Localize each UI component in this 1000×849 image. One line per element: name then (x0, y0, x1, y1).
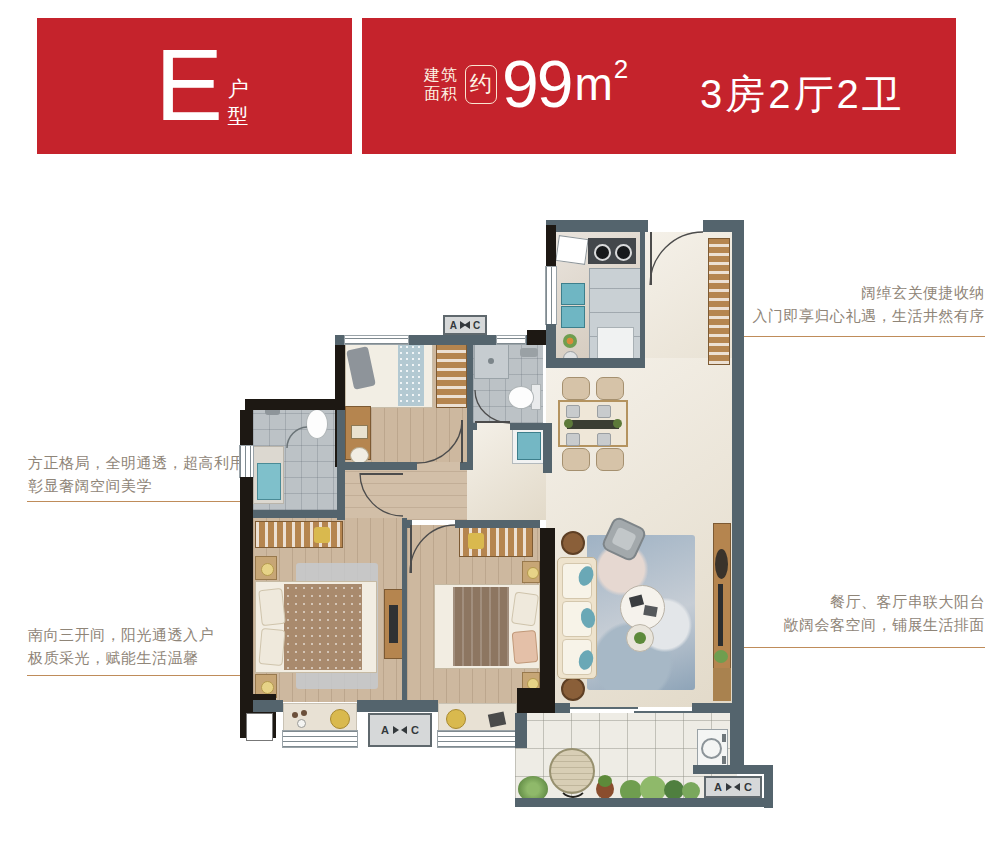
wall-segment (515, 713, 527, 748)
stove (588, 238, 636, 264)
dining-table (558, 400, 628, 447)
balcony-plant (664, 780, 684, 800)
bay-window-glass (438, 731, 517, 747)
dining-chair (596, 448, 624, 471)
kitchen-window (546, 267, 556, 324)
plant-top (598, 775, 612, 787)
master-door-arc (360, 473, 404, 517)
wall-segment (546, 225, 556, 267)
area-prefix-line1: 建筑 (424, 65, 458, 84)
console-shelf (713, 668, 731, 701)
bedroom3-door-arc (417, 420, 463, 464)
annotation-line: 极质采光，赋能生活温馨 (28, 646, 214, 669)
kitchen-basin (561, 306, 585, 328)
ac-platform-south: AC (368, 713, 432, 747)
master-wardrobe (255, 521, 343, 548)
burner-icon (594, 244, 611, 261)
annotation-line: 阔绰玄关便捷收纳 (753, 281, 986, 304)
unit-letter: E (155, 34, 223, 136)
dining-chair (562, 377, 590, 400)
lamp-icon (527, 567, 539, 579)
pillow (258, 588, 286, 626)
ac-label-a: A (450, 320, 457, 331)
wall-segment (730, 713, 744, 765)
annotation-layout: 方正格局，全明通透，超高利用率 彰显奢阔空间美学 (28, 451, 261, 497)
tea-set-icon (297, 719, 306, 728)
wall-segment (245, 399, 337, 410)
ac-label-a: A (714, 781, 722, 793)
console-plant (714, 650, 728, 663)
wall-segment (543, 423, 552, 473)
kitchen-basin (561, 283, 585, 305)
toilet-bowl (508, 386, 534, 409)
annotation-line: 方正格局，全明通透，超高利用率 (28, 451, 261, 474)
wall-segment (555, 703, 570, 713)
annotation-line: 敞阔会客空间，铺展生活排面 (784, 613, 986, 636)
bed2 (434, 584, 540, 669)
wall-segment (540, 528, 555, 690)
lamp-icon (261, 563, 274, 576)
annotation-south: 南向三开间，阳光通透入户 极质采光，赋能生活温馨 (28, 623, 214, 669)
leader-line-layout (27, 501, 247, 502)
shower-partition (287, 427, 308, 449)
table-plant (613, 419, 622, 428)
shoe-cabinet (708, 238, 730, 365)
nightstand (522, 561, 540, 583)
leader-line-living (737, 647, 985, 648)
sofa (557, 557, 597, 679)
dresser-tv (389, 605, 398, 643)
pillow (258, 628, 285, 666)
place-setting (597, 405, 611, 418)
master-bed (255, 581, 377, 673)
tv-screen (718, 584, 723, 646)
wardrobe3 (436, 342, 467, 408)
wall-segment (517, 688, 555, 713)
wall-segment (546, 324, 556, 360)
layout-label: 3房2厅2卫 (700, 67, 905, 122)
annotation-line: 南向三开间，阳光通透入户 (28, 623, 214, 646)
leader-line-south (27, 675, 247, 676)
washer-controls (722, 756, 726, 764)
dining-chair (596, 377, 624, 400)
bed3-runner (398, 344, 424, 406)
place-setting (566, 433, 580, 446)
wall-segment (253, 510, 337, 518)
annotation-living: 餐厅、客厅串联大阳台 敞阔会客空间，铺展生活排面 (784, 590, 986, 636)
wardrobe-item (468, 533, 484, 549)
drain-icon (488, 358, 494, 364)
wall-segment (693, 798, 773, 807)
basket-icon (446, 709, 466, 729)
coffee-table-small (626, 624, 654, 652)
wall-segment (345, 462, 417, 470)
bath-mat (257, 463, 281, 500)
wall-segment (240, 410, 253, 446)
wall-segment (546, 220, 648, 232)
side-table (561, 531, 585, 555)
side-table (561, 677, 585, 701)
ac-bowtie-icon (393, 726, 407, 734)
place-setting (597, 433, 611, 446)
annotation-entry: 阔绰玄关便捷收纳 入门即享归心礼遇，生活井然有序 (753, 281, 986, 327)
wall-segment (473, 423, 477, 430)
header-unit-block: E 户型 (37, 18, 352, 154)
leader-line-entry (742, 336, 985, 337)
master-bath-window (240, 446, 253, 477)
entry-door-arc (650, 232, 704, 286)
wall-segment (240, 477, 253, 518)
area-value: 99 (502, 51, 571, 117)
unit-type-label: 户型 (227, 75, 249, 129)
wall-segment (692, 703, 737, 713)
washer-drum (701, 738, 722, 759)
annotation-line: 彰显奢阔空间美学 (28, 474, 261, 497)
wall-segment (510, 423, 545, 430)
ac-label-c: C (411, 724, 419, 736)
area-prefix: 建筑 面积 (424, 65, 458, 103)
camera-icon (488, 711, 506, 727)
shower-area (475, 344, 508, 378)
bay-window-sill (283, 703, 357, 731)
annotation-line: 餐厅、客厅串联大阳台 (784, 590, 986, 613)
fruit-bowl (563, 334, 577, 348)
area-group: 建筑 面积 约 99 m2 (424, 51, 627, 117)
duvet (284, 584, 362, 670)
place-setting (566, 405, 580, 418)
wardrobe2 (459, 526, 533, 557)
wall-segment (693, 765, 773, 774)
wall-segment (515, 798, 707, 807)
wall-segment (402, 518, 407, 708)
header-info-block: 建筑 面积 约 99 m2 3房2厅2卫 (362, 18, 956, 154)
ac-bowtie-icon (460, 321, 470, 329)
desk-books (351, 425, 368, 439)
sliding-door-track (634, 711, 696, 713)
pillow (512, 630, 539, 664)
washing-machine (697, 729, 728, 769)
bedroom3-window (345, 336, 408, 344)
burner-icon (615, 244, 632, 261)
bay-window-sill (438, 703, 517, 731)
ac-platform-top: AC (443, 315, 487, 335)
wall-segment (455, 520, 540, 528)
bath2-window (497, 336, 525, 344)
annotation-line: 入门即享归心礼遇，生活井然有序 (753, 304, 986, 327)
armchair-cushion (611, 527, 637, 552)
sliding-door-track (570, 707, 638, 709)
table-runner (567, 420, 619, 429)
kitchen-sink (555, 235, 588, 265)
table-plant (634, 632, 646, 644)
vanity-sink (517, 432, 541, 460)
ac-bowtie-icon (726, 783, 740, 791)
wall-segment (357, 700, 438, 712)
tea-set-icon (301, 710, 307, 716)
egg-chair-stand (558, 768, 588, 798)
wall-segment (240, 518, 253, 694)
bedroom2-door-arc (410, 525, 456, 574)
area-unit: m2 (574, 61, 627, 107)
speaker (715, 549, 728, 579)
toilet-bowl (306, 409, 328, 439)
wall-segment (546, 358, 645, 368)
nightstand (255, 556, 277, 580)
wall-segment (732, 220, 744, 713)
bay-window-glass (283, 731, 357, 747)
ac-platform-balcony: AC (704, 776, 762, 798)
approx-badge: 约 (465, 65, 497, 104)
area-unit-letter: m (574, 58, 612, 110)
basket-icon (330, 709, 350, 729)
tea-set-icon (292, 712, 298, 718)
wall-segment (253, 700, 283, 712)
dishwasher (597, 327, 634, 361)
floorplan-page: E 户型 建筑 面积 约 99 m2 3房2厅2卫 阔绰玄关便捷收纳 入门即享归… (0, 0, 1000, 849)
lamp-icon (261, 681, 274, 694)
corner-window (246, 713, 273, 741)
wall-segment (527, 330, 546, 345)
area-prefix-line2: 面积 (424, 84, 458, 103)
ac-label-c: C (744, 781, 752, 793)
dining-chair (562, 448, 590, 471)
washer-controls (722, 734, 726, 742)
bath2-door-arc (475, 390, 511, 424)
wall-segment (467, 342, 473, 467)
book (643, 605, 658, 617)
faucet-icon (520, 348, 538, 357)
ac-label-a: A (381, 724, 389, 736)
pillow (511, 591, 539, 626)
duvet (453, 587, 509, 666)
wardrobe-item (314, 527, 330, 543)
area-unit-sup: 2 (614, 54, 628, 84)
table-plant (564, 419, 573, 428)
potted-plant (596, 779, 614, 799)
wall-segment (337, 467, 345, 520)
book (629, 594, 644, 607)
master-dresser (384, 589, 403, 659)
wall-segment (640, 232, 645, 358)
ac-label-c: C (473, 320, 480, 331)
